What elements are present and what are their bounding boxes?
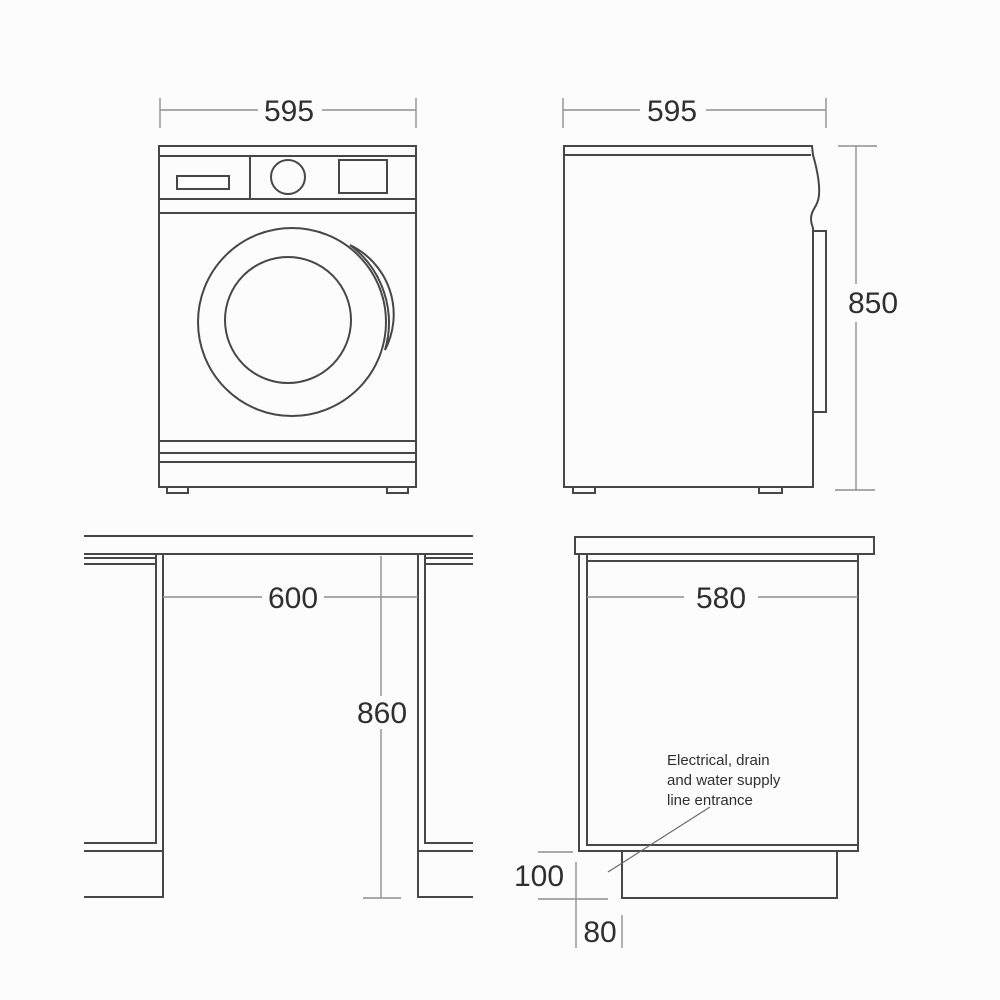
cutout-plinth [622,851,837,898]
installation-diagram: 595 595 850 600 860 [0,0,1000,1000]
control-panel-bottom-lines [159,199,416,213]
front-view: 595 [159,95,416,493]
service-note-line2: and water supply [667,772,781,789]
service-note-line1: Electrical, drain [667,752,770,769]
service-note-leader-line [608,807,710,872]
side-door-profile [813,231,826,412]
service-note-line3: line entrance [667,792,753,809]
niche-width-dim-label: 600 [268,582,318,615]
cutout-countertop [575,537,874,554]
program-knob [271,160,305,194]
left-cabinet-panel [85,556,163,897]
detergent-drawer [177,176,229,189]
countertop-lines [85,536,472,554]
niche-height-dim-label: 860 [357,697,407,730]
diagram-svg: 595 595 850 600 860 [0,0,1000,1000]
side-height-dim-label: 850 [848,287,898,320]
kick-panel-lines [159,441,416,462]
side-depth-dim-label: 595 [647,95,697,128]
front-width-dim-label: 595 [264,95,314,128]
niche-side-view: 580 Electrical, drain and water supply l… [514,537,874,949]
side-view: 595 850 [563,95,898,493]
front-foot-left [167,487,188,493]
side-foot-right [759,487,782,493]
side-top-lid [564,146,813,155]
cutout-depth-dim-label: 580 [696,582,746,615]
right-cabinet-panel [418,556,472,897]
display-window [339,160,387,193]
plinth-recess-dim-label: 80 [583,916,616,949]
front-foot-right [387,487,408,493]
door-handle [350,245,394,350]
door-glass [225,257,351,383]
side-foot-left [573,487,595,493]
niche-front-view: 600 860 [85,536,472,898]
plinth-height-dim-label: 100 [514,860,564,893]
side-front-contour [811,155,819,231]
side-back-and-bottom [564,146,813,487]
